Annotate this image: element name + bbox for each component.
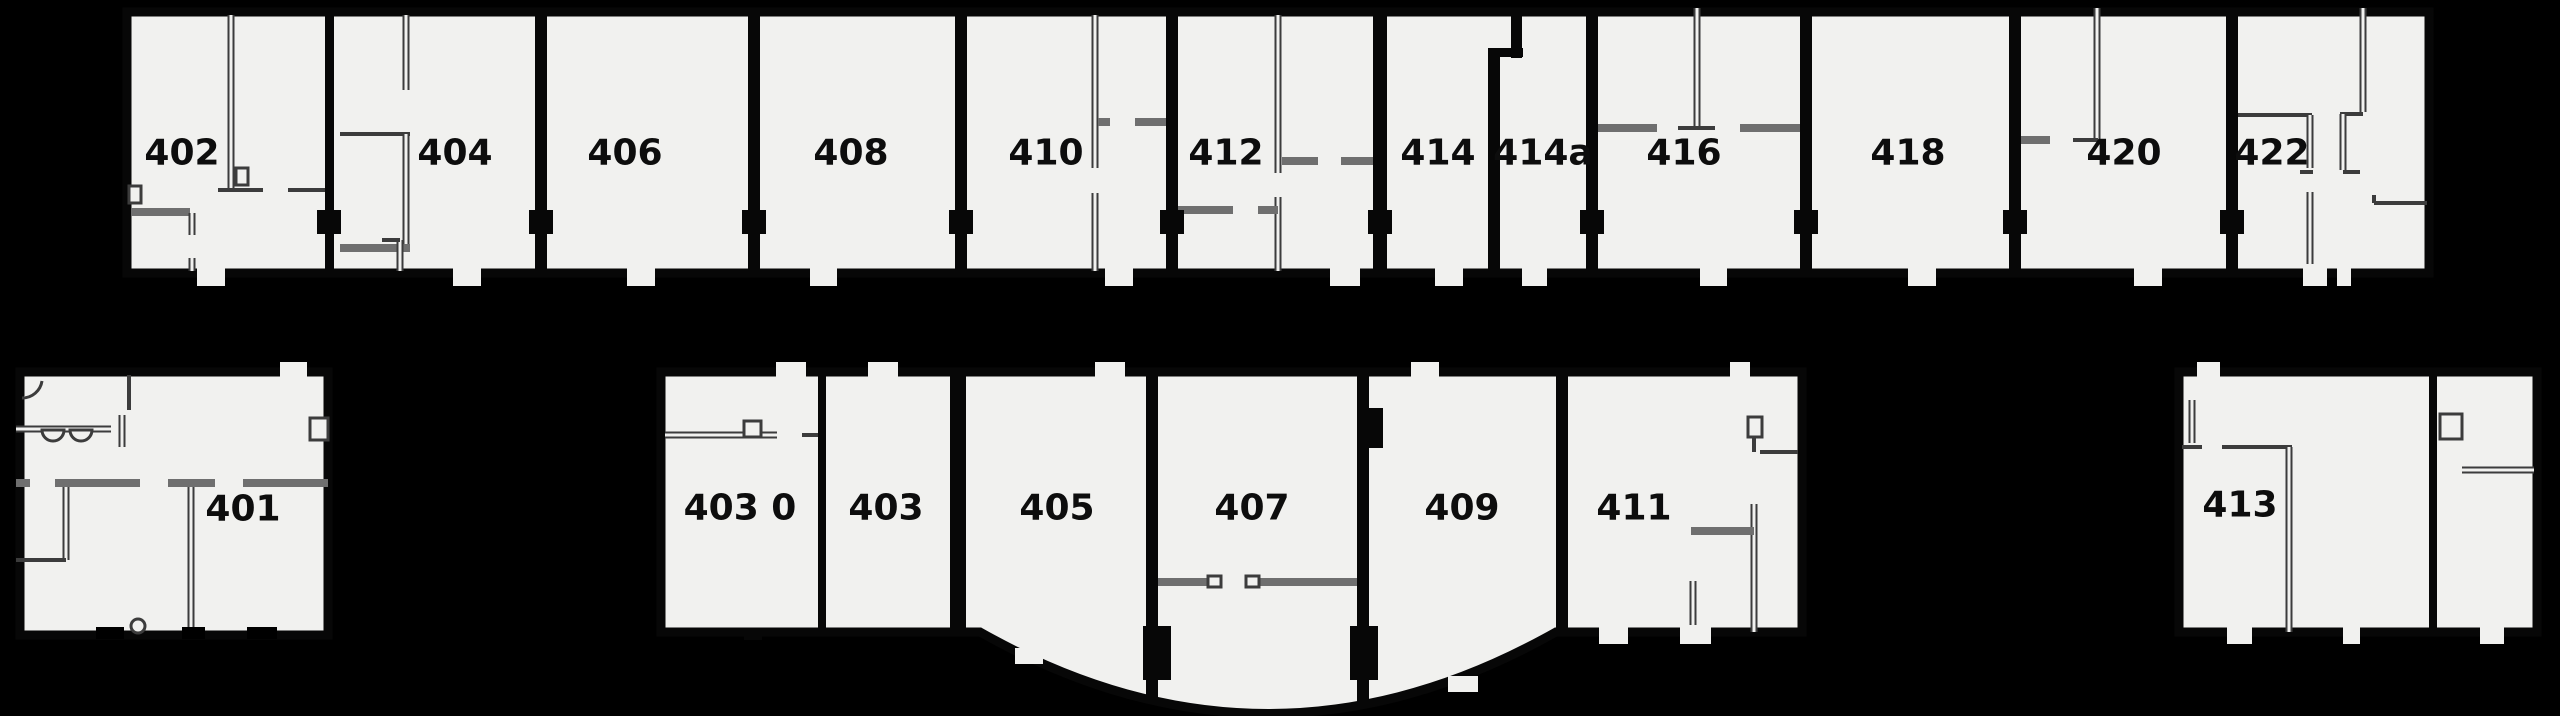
fixture-icon <box>1246 576 1259 587</box>
door-opening <box>2303 264 2327 286</box>
fixture-icon <box>2440 414 2462 439</box>
door-opening <box>1330 264 1360 286</box>
door-opening <box>2343 625 2360 644</box>
door-opening <box>810 264 837 286</box>
wall-gap <box>247 627 277 639</box>
door-block <box>529 210 553 234</box>
room-label-422: 422 <box>2234 133 2309 174</box>
door-opening <box>1435 264 1463 286</box>
fixture-icon <box>310 418 328 440</box>
door-block <box>1794 210 1818 234</box>
door-opening <box>1105 264 1133 286</box>
door-opening <box>1730 362 1750 380</box>
door-block <box>1357 408 1383 448</box>
door-opening <box>1680 625 1711 644</box>
fixture-icon <box>236 168 248 185</box>
room-label-402: 402 <box>144 133 219 174</box>
wall-gap <box>96 627 124 639</box>
door-block <box>2220 210 2244 234</box>
door-opening <box>1522 264 1547 286</box>
door-block <box>1143 626 1171 680</box>
fixture-icon <box>131 619 145 633</box>
door-opening <box>2134 264 2162 286</box>
fixture-icon <box>129 186 141 203</box>
door-opening <box>1095 362 1125 380</box>
wall-gap <box>182 627 205 639</box>
door-block <box>1580 210 1604 234</box>
room-label-413: 413 <box>2202 485 2277 526</box>
fixture-icon <box>744 421 761 437</box>
door-block <box>1368 210 1392 234</box>
separator-wall <box>1488 48 1523 57</box>
door-opening <box>453 264 481 286</box>
room-label-408: 408 <box>813 133 888 174</box>
room-label-414: 414 <box>1400 133 1475 174</box>
door-opening <box>776 362 806 380</box>
door-block <box>1160 210 1184 234</box>
fixture-icon <box>1748 417 1762 437</box>
room-label-409: 409 <box>1424 488 1499 529</box>
room-label-411: 411 <box>1596 488 1671 529</box>
separator-wall <box>818 375 826 632</box>
door-opening <box>1908 264 1936 286</box>
room-label-418: 418 <box>1870 133 1945 174</box>
separator-wall <box>950 375 966 632</box>
door-block <box>1350 626 1378 680</box>
room-label-410: 410 <box>1008 133 1083 174</box>
door-opening <box>2227 625 2252 644</box>
door-opening <box>197 264 225 286</box>
door-opening <box>868 362 898 380</box>
door-block <box>2003 210 2027 234</box>
separator-wall <box>1556 375 1568 632</box>
room-label-405: 405 <box>1019 488 1094 529</box>
room-label-420: 420 <box>2086 133 2161 174</box>
room-label-412: 412 <box>1188 133 1263 174</box>
room-label-406: 406 <box>587 133 662 174</box>
door-block <box>949 210 973 234</box>
door-opening <box>1411 362 1439 380</box>
room-label-403-0: 403 0 <box>684 488 797 529</box>
door-block <box>742 210 766 234</box>
door-block <box>317 210 341 234</box>
floor-plan-canvas: 402404406408410412414414a416418420422401… <box>0 0 2560 716</box>
door-opening <box>280 362 307 380</box>
room-label-416: 416 <box>1646 133 1721 174</box>
fixture-icon <box>42 430 64 441</box>
door-opening <box>1700 264 1727 286</box>
door-opening <box>2480 625 2504 644</box>
separator-wall <box>2429 375 2437 632</box>
door-opening <box>1599 625 1628 644</box>
floor-plan: 402404406408410412414414a416418420422401… <box>0 0 2560 716</box>
door-block <box>744 628 762 640</box>
fixture-icon <box>1208 576 1221 587</box>
room-label-403: 403 <box>848 488 923 529</box>
door-opening <box>627 264 655 286</box>
room-label-414a: 414a <box>1493 133 1592 174</box>
door-opening <box>1448 676 1478 692</box>
room-label-404: 404 <box>417 133 492 174</box>
room-label-401: 401 <box>205 489 280 530</box>
room-label-407: 407 <box>1214 488 1289 529</box>
door-opening <box>2337 264 2351 286</box>
fixture-icon <box>70 430 92 441</box>
door-opening <box>1015 648 1043 664</box>
door-opening <box>2197 362 2220 380</box>
